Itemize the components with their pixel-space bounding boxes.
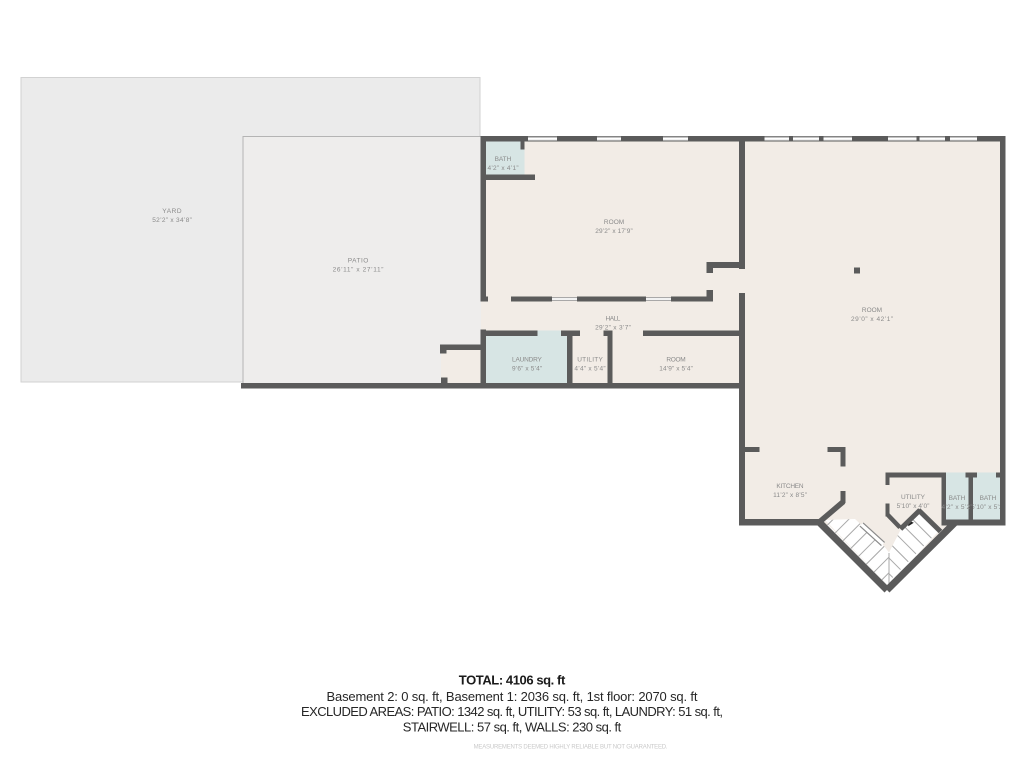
svg-text:UTILITY: UTILITY (577, 357, 603, 364)
svg-text:ROOM: ROOM (666, 357, 685, 364)
svg-text:BATH: BATH (495, 156, 512, 163)
svg-text:STAIRWELL: 57 sq. ft, WALLS: 2: STAIRWELL: 57 sq. ft, WALLS: 230 sq. ft (403, 719, 622, 734)
svg-text:14’9” x 5’4”: 14’9” x 5’4” (659, 366, 693, 373)
svg-text:26’11” x 27’11”: 26’11” x 27’11” (333, 267, 384, 274)
svg-text:ROOM: ROOM (604, 219, 624, 226)
svg-text:KITCHEN: KITCHEN (776, 483, 803, 490)
svg-text:29’0” x 42’1”: 29’0” x 42’1” (851, 316, 893, 323)
svg-text:5’10” x 5’2”: 5’10” x 5’2” (971, 504, 1005, 511)
svg-text:HALL: HALL (606, 316, 621, 323)
svg-text:TOTAL: 4106 sq. ft: TOTAL: 4106 sq. ft (459, 672, 566, 687)
svg-text:LAUNDRY: LAUNDRY (512, 357, 543, 364)
svg-text:11’2” x 8’5”: 11’2” x 8’5” (773, 492, 807, 499)
svg-text:UTILITY: UTILITY (901, 494, 926, 501)
svg-text:ROOM: ROOM (862, 307, 882, 314)
svg-text:4’4” x 5’4”: 4’4” x 5’4” (574, 366, 605, 373)
svg-text:PATIO: PATIO (348, 258, 369, 265)
svg-text:52’2” x 34’8”: 52’2” x 34’8” (152, 217, 192, 224)
svg-text:5’10” x 4’0”: 5’10” x 4’0” (897, 503, 930, 510)
svg-text:4’2” x 5’2”: 4’2” x 5’2” (942, 504, 973, 511)
svg-text:Basement 2: 0 sq. ft, Basement: Basement 2: 0 sq. ft, Basement 1: 2036 s… (327, 689, 698, 704)
svg-text:YARD: YARD (162, 208, 182, 215)
svg-text:EXCLUDED AREAS: PATIO: 1342 sq: EXCLUDED AREAS: PATIO: 1342 sq. ft, UTIL… (301, 704, 723, 719)
svg-text:29’2” x 17’9”: 29’2” x 17’9” (595, 228, 633, 235)
svg-text:4’2” x 4’1”: 4’2” x 4’1” (488, 165, 519, 172)
svg-text:9’6” x 5’4”: 9’6” x 5’4” (512, 366, 542, 373)
svg-text:MEASUREMENTS DEEMED HIGHLY REL: MEASUREMENTS DEEMED HIGHLY RELIABLE BUT … (474, 745, 668, 751)
svg-text:BATH: BATH (949, 495, 966, 502)
svg-text:29’2” x 3’7”: 29’2” x 3’7” (595, 325, 631, 332)
svg-text:BATH: BATH (980, 495, 997, 502)
